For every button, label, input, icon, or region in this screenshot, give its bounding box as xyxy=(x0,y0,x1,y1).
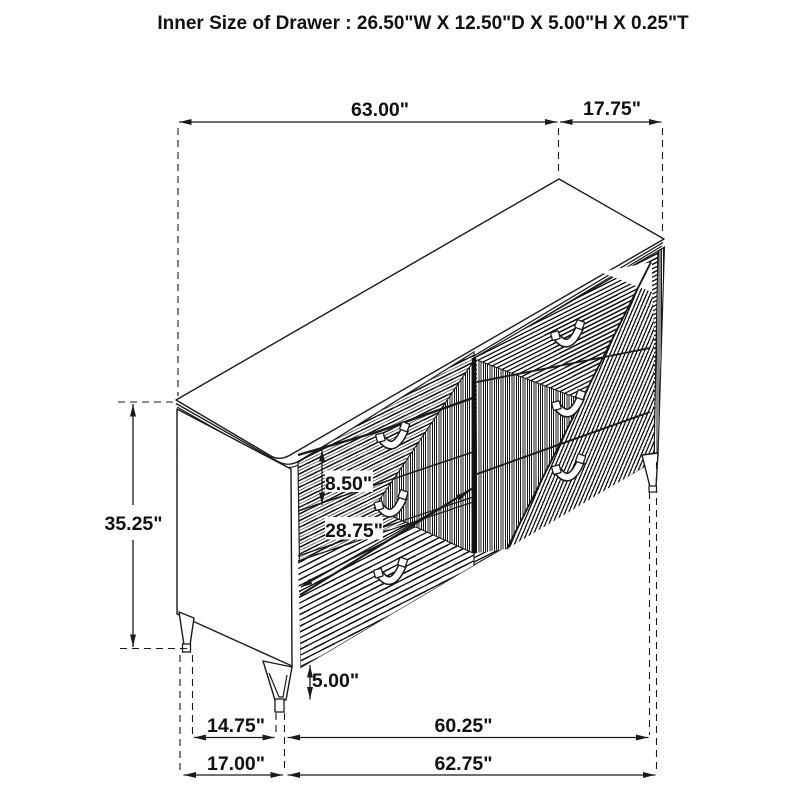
svg-text:17.75": 17.75" xyxy=(583,98,641,120)
svg-text:14.75": 14.75" xyxy=(207,715,265,737)
svg-text:62.75": 62.75" xyxy=(434,753,492,775)
svg-text:28.75": 28.75" xyxy=(325,520,383,542)
svg-text:60.25": 60.25" xyxy=(434,715,492,737)
svg-text:17.00": 17.00" xyxy=(207,753,265,775)
svg-text:8.50": 8.50" xyxy=(325,473,372,495)
svg-text:Inner Size of Drawer : 26.50"W: Inner Size of Drawer : 26.50"W X 12.50"D… xyxy=(157,13,689,34)
svg-text:63.00": 63.00" xyxy=(351,99,409,121)
svg-text:5.00": 5.00" xyxy=(312,670,359,692)
svg-text:35.25": 35.25" xyxy=(104,513,162,535)
